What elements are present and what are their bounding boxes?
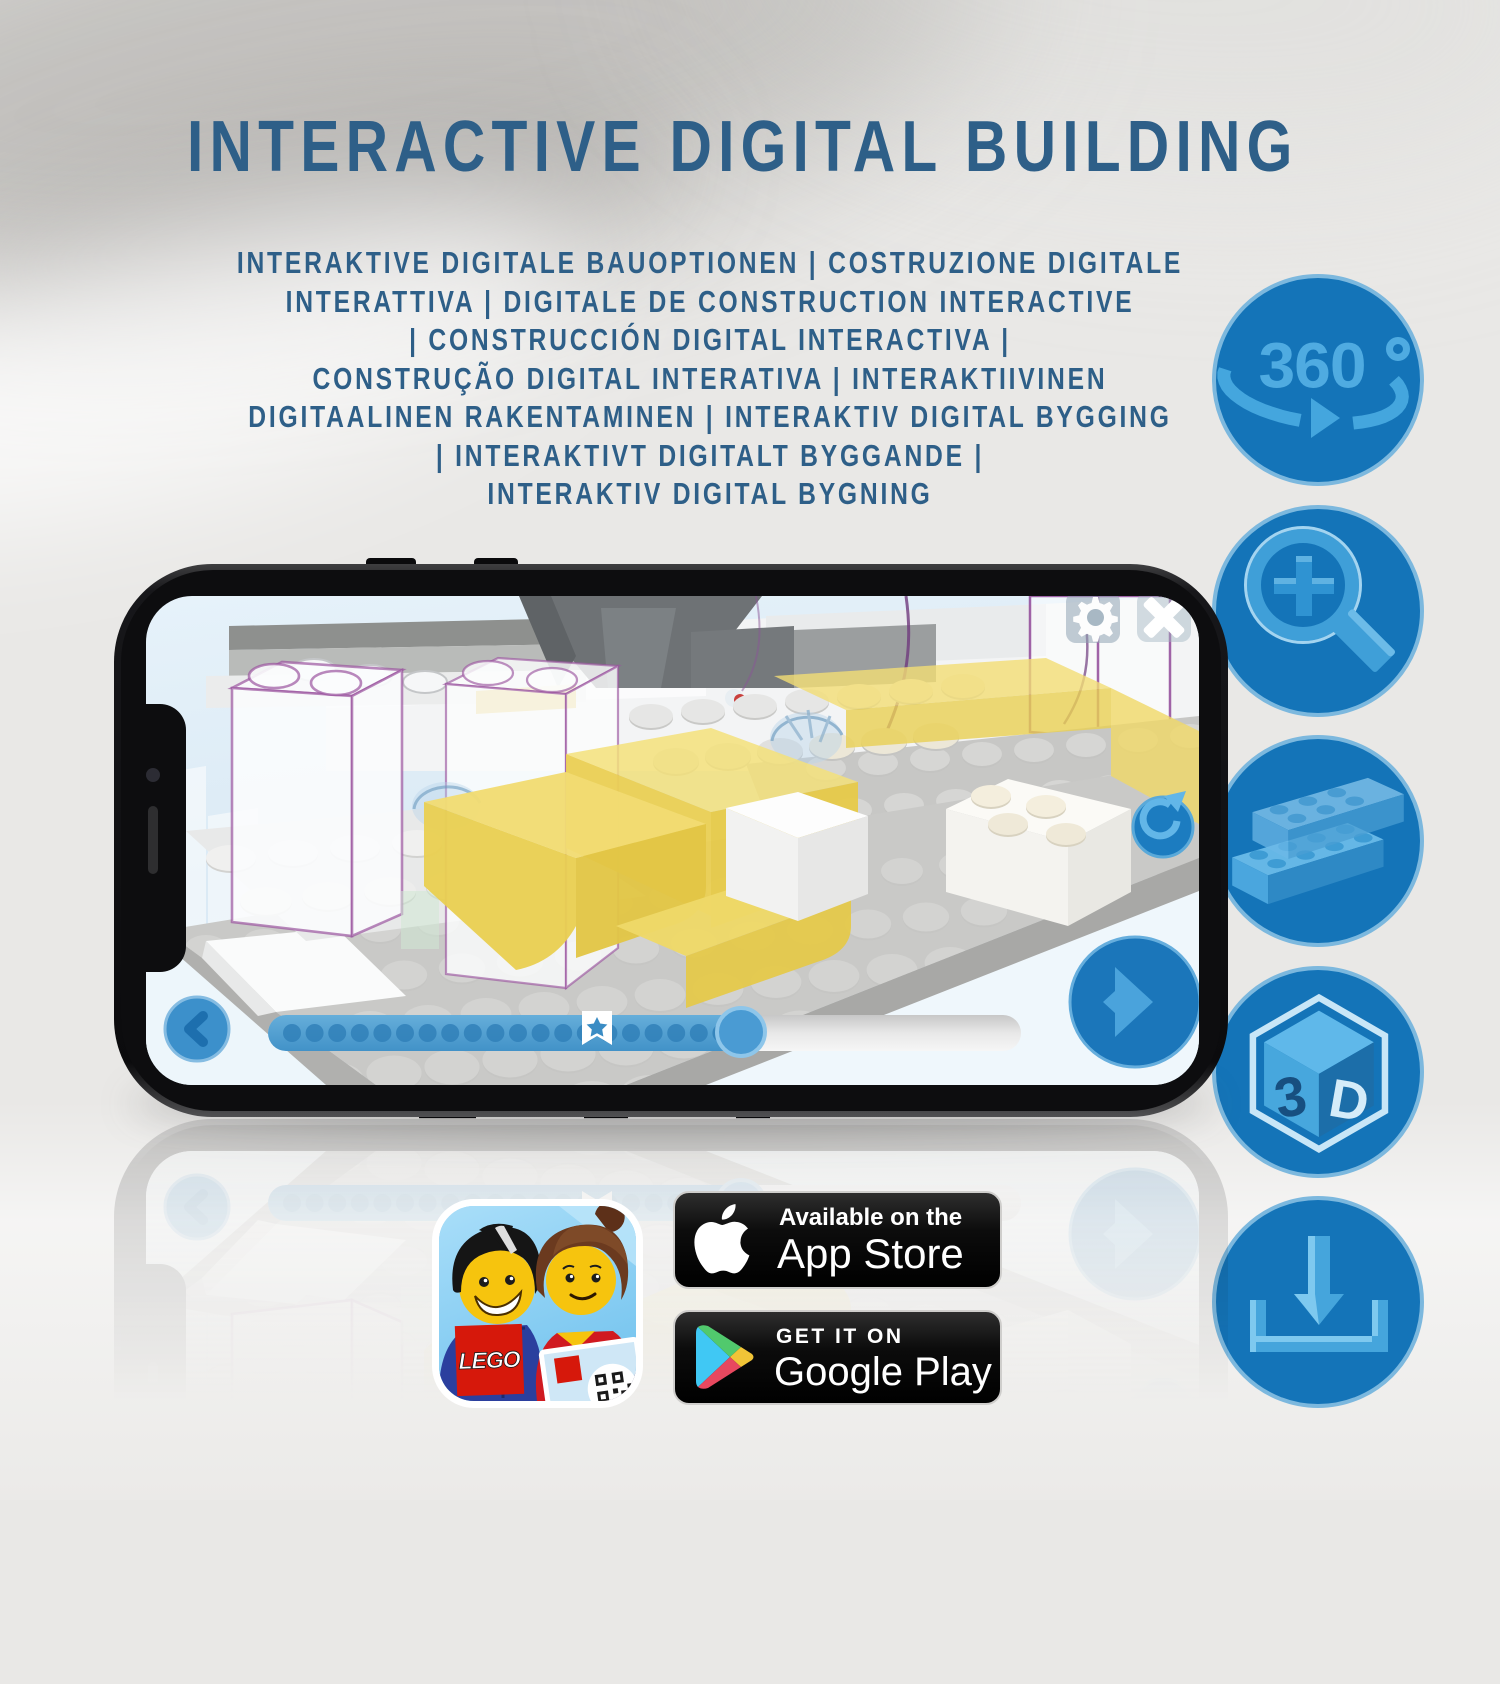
svg-text:360: 360 [1258, 329, 1365, 401]
svg-text:Available on the: Available on the [779, 1204, 962, 1231]
svg-text:Google Play: Google Play [774, 1350, 992, 1394]
svg-text:LEGO: LEGO [458, 1346, 521, 1374]
svg-text:App Store: App Store [777, 1230, 964, 1277]
svg-text:GET IT ON: GET IT ON [776, 1325, 904, 1348]
